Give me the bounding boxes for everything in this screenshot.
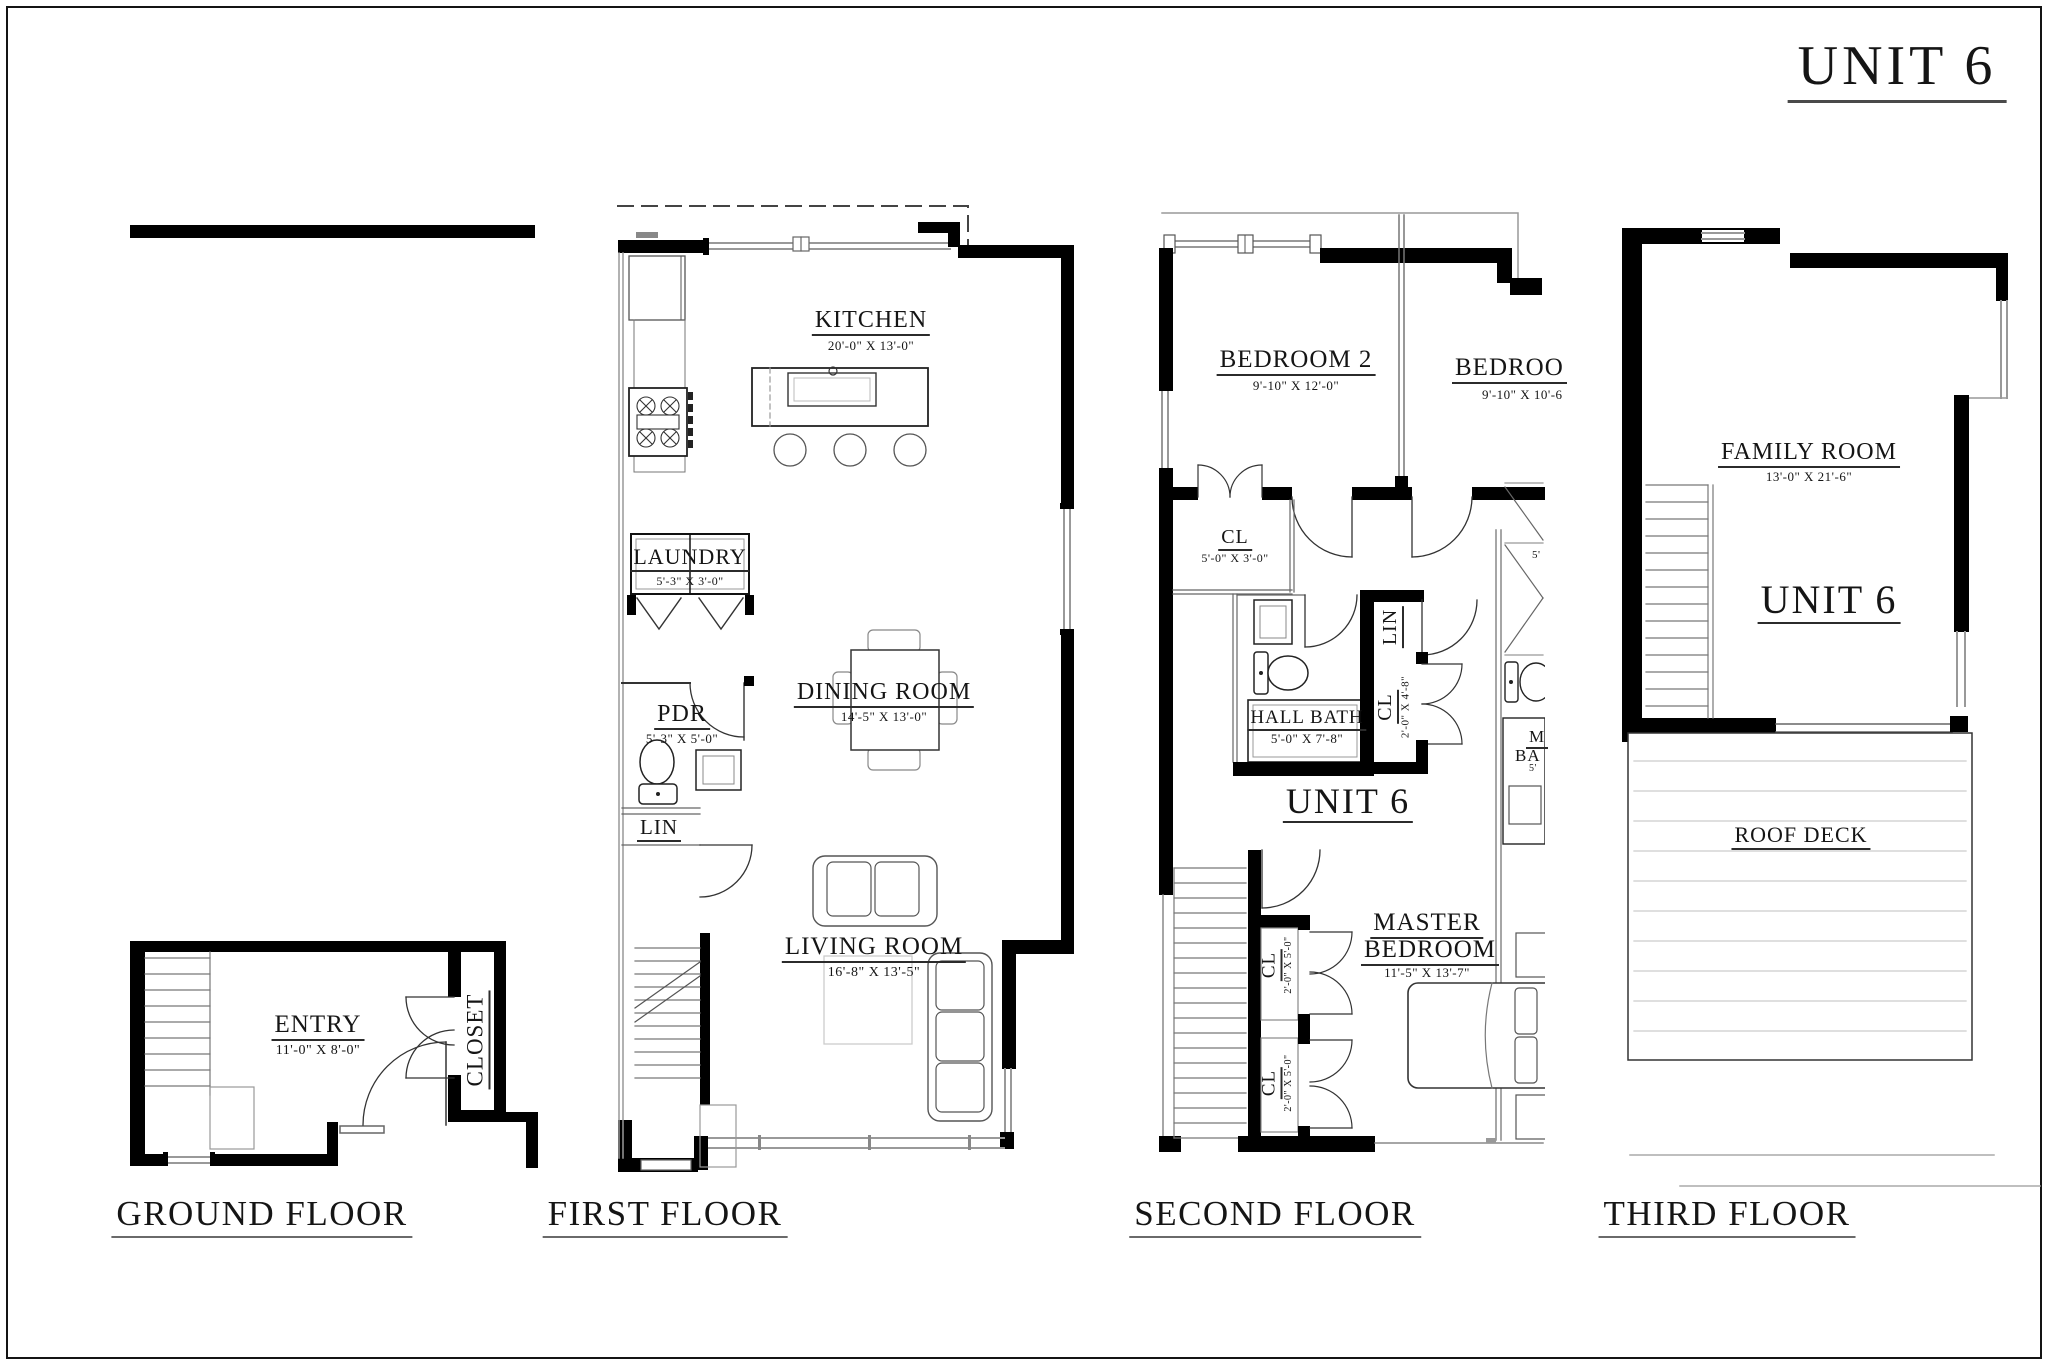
room-dims-hall-bath: 5'-0" X 7'-8"	[1271, 732, 1343, 745]
third-floor-plan	[1622, 228, 2040, 1186]
room-label-lin-first: LIN	[637, 817, 681, 842]
room-dims-pdr: 5'-3" X 5'-0"	[646, 732, 718, 745]
room-dims-master: 11'-5" X 13'-7"	[1384, 966, 1470, 979]
floor-label-second: SECOND FLOOR	[1129, 1196, 1421, 1238]
unit-label-third: UNIT 6	[1758, 580, 1901, 624]
dim-partial-bottom: 5'	[1529, 764, 1537, 774]
room-label-cl-mid: CL	[1375, 690, 1399, 724]
room-label-dining: DINING ROOM	[794, 680, 974, 708]
room-label-cl-master2: CL	[1260, 1067, 1283, 1099]
floorplan-linework	[0, 0, 2048, 1365]
room-label-master-line2: BEDROOM	[1361, 937, 1499, 966]
room-label-kitchen: KITCHEN	[812, 308, 930, 336]
room-dims-cl-hall: 5'-0" X 3'-0"	[1201, 552, 1268, 564]
room-label-mbath-partial2: BA	[1515, 747, 1541, 764]
room-label-lin-second: LIN	[1380, 606, 1404, 648]
room-dims-bedroom3-partial: 9'-10" X 10'-6	[1482, 388, 1563, 401]
room-dims-cl-mid: 2'-0" X 4'-8"	[1401, 676, 1412, 738]
room-label-entry: ENTRY	[272, 1012, 365, 1041]
room-dims-entry: 11'-0" X 8'-0"	[276, 1044, 360, 1058]
room-label-roof-deck: ROOF DECK	[1731, 824, 1870, 850]
room-label-pdr: PDR	[654, 702, 710, 730]
room-dims-laundry: 5'-3" X 3'-0"	[656, 575, 723, 587]
unit-label-second: UNIT 6	[1283, 783, 1413, 823]
room-label-closet: CLOSET	[464, 991, 491, 1090]
floor-label-first: FIRST FLOOR	[543, 1196, 788, 1238]
room-dims-living: 16'-8" X 13'-5"	[828, 966, 920, 980]
room-dims-family: 13'-0" X 21'-6"	[1766, 470, 1852, 483]
room-label-bedroom2: BEDROOM 2	[1217, 347, 1376, 376]
room-label-family: FAMILY ROOM	[1718, 440, 1900, 468]
floor-label-third: THIRD FLOOR	[1599, 1196, 1856, 1238]
room-dims-cl-master1: 2'-0" X 5'-0"	[1284, 936, 1294, 993]
room-label-cl-master1: CL	[1260, 949, 1283, 981]
room-dims-cl-master2: 2'-0" X 5'-0"	[1284, 1054, 1294, 1111]
floorplan-sheet: UNIT 6 ENTRY 11'-0" X 8'-0" CLOSET GROUN…	[0, 0, 2048, 1365]
room-dims-dining: 14'-5" X 13'-0"	[841, 710, 927, 723]
room-label-hall-bath: HALL BATH	[1247, 708, 1366, 731]
sheet-title: UNIT 6	[1788, 38, 2007, 103]
room-label-laundry: LAUNDRY	[630, 546, 749, 572]
room-label-cl-hall: CL	[1218, 527, 1252, 551]
room-label-master-line1: MASTER	[1370, 910, 1483, 939]
floor-label-ground: GROUND FLOOR	[111, 1196, 412, 1238]
room-dims-bedroom2: 9'-10" X 12'-0"	[1253, 379, 1339, 392]
party-wall	[130, 225, 535, 238]
room-label-bedroom3-partial: BEDROO	[1452, 355, 1567, 384]
room-label-living: LIVING ROOM	[782, 934, 966, 963]
room-dims-kitchen: 20'-0" X 13'-0"	[828, 339, 914, 352]
dim-partial-top: 5'	[1532, 550, 1540, 561]
